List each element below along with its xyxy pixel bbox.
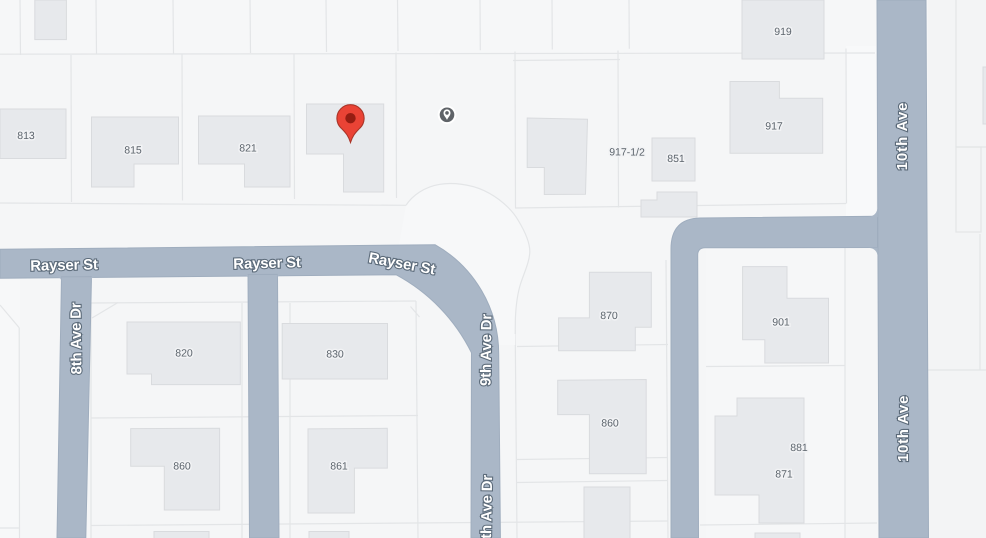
svg-text:901: 901 <box>772 316 790 328</box>
svg-text:813: 813 <box>17 130 35 142</box>
svg-text:821: 821 <box>239 142 257 154</box>
svg-text:919: 919 <box>774 26 792 38</box>
svg-text:861: 861 <box>330 460 348 472</box>
svg-text:820: 820 <box>175 347 193 359</box>
svg-text:8th Ave Dr: 8th Ave Dr <box>67 302 85 375</box>
svg-text:Rayser St: Rayser St <box>233 254 301 273</box>
svg-text:10th Ave: 10th Ave <box>895 395 912 462</box>
svg-text:860: 860 <box>601 417 619 429</box>
svg-text:9th Ave Dr: 9th Ave Dr <box>478 475 496 538</box>
svg-text:10th Ave: 10th Ave <box>894 102 911 171</box>
svg-text:917-1/2: 917-1/2 <box>609 146 645 158</box>
svg-text:917: 917 <box>765 120 783 132</box>
svg-text:Rayser St: Rayser St <box>30 256 98 274</box>
svg-text:9th Ave Dr: 9th Ave Dr <box>478 314 496 386</box>
svg-text:830: 830 <box>326 348 344 360</box>
svg-text:870: 870 <box>600 310 618 322</box>
svg-text:871: 871 <box>775 468 793 480</box>
svg-text:881: 881 <box>790 442 808 454</box>
svg-text:851: 851 <box>667 153 685 165</box>
svg-text:860: 860 <box>173 460 191 472</box>
svg-text:815: 815 <box>124 144 142 156</box>
